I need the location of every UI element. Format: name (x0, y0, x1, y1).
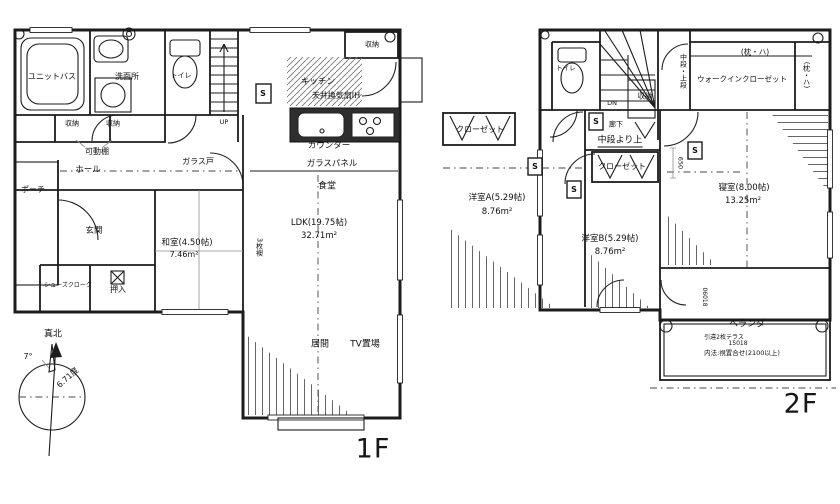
label-inner-note: 内法:視置合せ(2100以上) (704, 350, 780, 357)
porch-steps (15, 162, 58, 285)
label-shutter-2f-bedroom: S (692, 147, 698, 155)
label-fusuma: 3枚襖 (256, 238, 263, 256)
label-western-a-area: 8.76m² (482, 208, 513, 217)
label-kitchen-storage: 収納 (365, 42, 379, 49)
label-washroom: 洗面所 (115, 73, 139, 81)
label-shutter-1f: S (260, 90, 266, 98)
label-ldk-area: 32.71m² (301, 232, 337, 241)
label-walk-in-closet: ウォークインクローゼット (697, 75, 787, 83)
label-western-b: 洋室B(5.29帖) (582, 235, 639, 244)
label-living: 居間 (311, 341, 329, 350)
label-closet-a: クローゼット (456, 126, 504, 134)
label-declination-small: 7° (23, 353, 32, 361)
label-veranda: ベランダ (729, 321, 765, 330)
label-tv-space: TV置場 (350, 341, 380, 350)
kitchen-counter (290, 108, 400, 142)
label-kitchen-note: 天井換気扇IH (312, 92, 360, 100)
toilet-1f (170, 40, 200, 88)
label-toilet-2f: トイレ (556, 65, 576, 72)
label-dim-650: 650 (677, 157, 684, 169)
label-movable-shelf: 可動棚 (85, 148, 109, 156)
label-closet-b: クローゼット (598, 163, 646, 171)
label-unit-bath: ユニットバス (28, 73, 76, 81)
label-shelf-levels: 中段・上段 (680, 54, 687, 89)
label-window-code: 06018 (701, 287, 707, 306)
label-oshiire: 押入 (110, 286, 126, 294)
label-western-a: 洋室A(5.29帖) (469, 194, 526, 203)
label-counter: カウンター (308, 142, 351, 151)
label-ldk: LDK(19.75帖) (291, 219, 347, 228)
label-storage-right: 収納 (106, 121, 120, 128)
label-bedroom-area: 13.25m² (725, 197, 761, 206)
label-hall: ホール (75, 166, 101, 175)
label-shutter-2f-b: S (571, 186, 577, 194)
floor2-title: 2F (784, 391, 819, 418)
label-terrace-code: 15018 (728, 341, 747, 347)
label-shoes-closet: シューズクローク (44, 283, 92, 289)
label-shutter-2f-a: S (532, 163, 538, 171)
label-kitchen: キッチン (301, 78, 335, 87)
label-pillow-shelf-right: (枕・ハ) (803, 62, 810, 88)
label-entrance: 玄関 (85, 227, 102, 236)
label-bedroom: 寝室(8.00帖) (718, 184, 769, 193)
label-toilet-1f: トイレ (171, 73, 192, 80)
label-glass-door: ガラス戸 (182, 158, 214, 166)
hatch-bedroom-right (770, 112, 828, 192)
label-mid-landing: 中段より上 (598, 137, 643, 148)
bay-box (400, 58, 422, 102)
hatch-living (245, 334, 352, 415)
label-shutter-2f-hall: S (593, 118, 599, 126)
stairs-1f (210, 39, 238, 112)
label-stairs-up: UP (220, 119, 229, 126)
label-glass-panel: ガラスパネル (307, 160, 358, 169)
label-dining: 食堂 (318, 183, 336, 192)
washer (95, 78, 131, 112)
label-storage-left: 収納 (65, 121, 79, 128)
hatch-bedroom-left (667, 215, 716, 265)
label-stairs-dn: DN (607, 100, 617, 107)
sink-vanity (94, 36, 128, 62)
label-storage-2f: 収納 (638, 92, 653, 100)
label-pillow-shelf-top: (枕・ハ) (741, 48, 769, 56)
oshiire-symbol (111, 271, 124, 284)
floorplan-canvas: ユニットバス 洗面所 トイレ 収納 収納 可動棚 ホール ガラス戸 ポーチ 玄関… (0, 0, 840, 504)
floor1-title: 1F (356, 436, 391, 463)
label-japanese-room-area: 7.46m² (170, 251, 199, 259)
label-true-north: 真北 (44, 331, 62, 340)
label-western-b-area: 8.76m² (595, 248, 626, 257)
label-corridor: 廊下 (609, 122, 623, 129)
label-porch: ポーチ (21, 186, 45, 194)
label-japanese-room: 和室(4.50帖) (161, 239, 212, 248)
